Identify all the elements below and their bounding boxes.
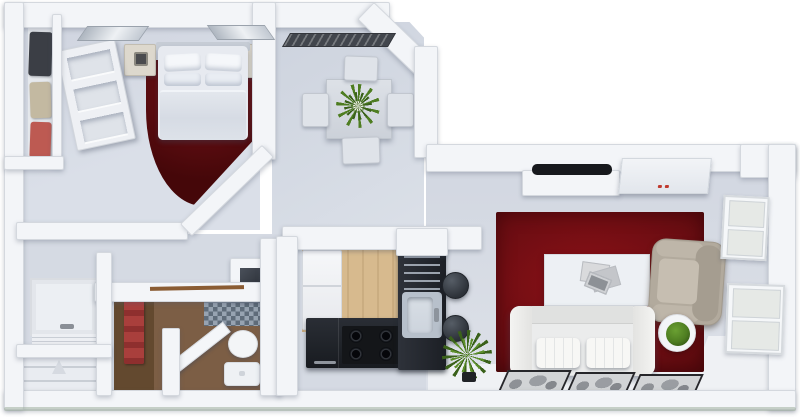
window-pane	[732, 288, 781, 319]
table-lamp-left	[134, 52, 148, 66]
cabinet-divider	[338, 318, 339, 368]
dining-chair-bottom	[342, 136, 381, 164]
sofa-armrest-left	[510, 306, 532, 376]
mosaic-tiles	[204, 298, 266, 326]
plant-pot	[462, 372, 476, 382]
fridge-door-seam	[303, 285, 341, 287]
toilet-bowl	[228, 330, 258, 358]
armchair	[647, 238, 727, 327]
window-pane	[727, 229, 764, 257]
kitchen-half-wall	[282, 226, 482, 250]
wall-bedroom-bottom	[16, 222, 188, 240]
dining-chair-top	[344, 55, 379, 81]
wall-dining-right	[414, 46, 438, 158]
wall-closet-bottom	[4, 156, 64, 170]
linen-closet	[20, 356, 108, 392]
toilet	[222, 328, 262, 388]
bed-pillow	[164, 53, 202, 72]
bar-stool	[442, 272, 469, 299]
red-towel	[124, 300, 144, 364]
sofa-backrest	[532, 306, 633, 324]
coffee-table	[544, 254, 650, 306]
kitchen-upper-cabinet	[396, 228, 448, 256]
wall-bathroom-stub	[162, 328, 180, 396]
dining-centerpiece-plant	[336, 84, 380, 128]
bed-pillow	[205, 53, 243, 72]
window-pane	[731, 320, 780, 351]
wall-right	[768, 144, 796, 410]
wall-linen-closet-top	[16, 344, 112, 358]
garment-red	[29, 122, 51, 159]
outer-base-line	[4, 407, 796, 411]
burner	[349, 347, 363, 361]
red-indicator	[665, 185, 669, 188]
kitchen-counter-side	[398, 246, 446, 370]
closet-shelf	[20, 380, 108, 382]
garment-dark	[28, 32, 53, 77]
cabinet-handle	[60, 324, 74, 329]
double-bed	[156, 42, 250, 142]
shelf-slot	[73, 80, 121, 113]
shelf-slot	[80, 112, 128, 145]
burner	[379, 347, 393, 361]
hall-wall-cabinet	[30, 278, 98, 336]
burner	[349, 329, 363, 343]
sofa-cushion	[536, 338, 580, 368]
ceiling-light-right	[207, 25, 276, 40]
sofa-armrest-right	[633, 306, 655, 376]
ceiling-light-left	[77, 26, 150, 41]
wall-bathroom-top	[94, 282, 286, 302]
ac-cabinet	[618, 158, 712, 194]
red-indicator	[658, 185, 662, 188]
sink-basin	[407, 297, 433, 333]
wall-mounted-tv	[532, 164, 612, 175]
two-seat-sofa	[510, 306, 655, 376]
wall-closet-partition	[52, 14, 62, 166]
wall-vent	[282, 33, 396, 47]
dining-chair-left	[302, 93, 329, 127]
side-table-plant	[666, 322, 690, 346]
window-upper	[720, 195, 769, 261]
bed-pillow	[205, 73, 242, 86]
sink-faucet	[434, 308, 439, 322]
bed-pillow	[164, 73, 201, 86]
cabinet-handle	[314, 361, 336, 364]
shelf-slot	[67, 49, 115, 82]
stove-cooktop	[342, 326, 404, 364]
nightstand-left	[124, 44, 156, 76]
burner	[379, 329, 393, 343]
wardrobe-rail	[28, 26, 54, 160]
kitchen-sink	[402, 292, 442, 338]
round-side-table	[658, 314, 696, 352]
wall-kitchen-left	[276, 236, 298, 396]
floorplan-render	[0, 0, 800, 417]
window-lower	[725, 283, 785, 355]
sofa-cushion	[586, 338, 630, 368]
wall-bathroom-stub	[96, 252, 112, 396]
drawer-stack	[404, 256, 440, 290]
bed-duvet	[160, 90, 246, 140]
dining-chair-right	[387, 93, 414, 127]
window-pane	[728, 200, 765, 228]
garment-beige	[29, 82, 51, 119]
armchair-seat	[657, 258, 700, 305]
closet-item	[52, 360, 66, 374]
flush-button	[239, 371, 245, 376]
plant-flowers	[353, 101, 364, 112]
